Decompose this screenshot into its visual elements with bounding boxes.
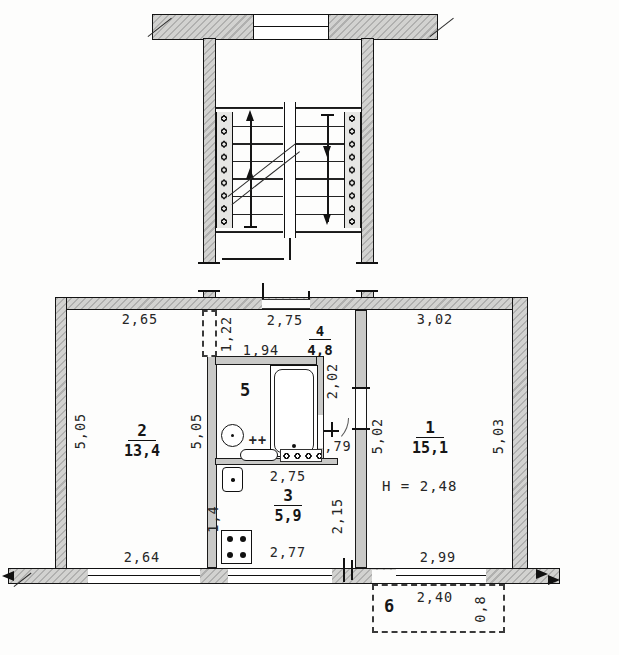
room2-area: 13,4 bbox=[124, 442, 160, 460]
tick bbox=[356, 290, 378, 292]
burner bbox=[227, 552, 233, 558]
balcony-door-opening bbox=[372, 570, 396, 583]
bathtub-drain bbox=[292, 444, 296, 448]
tick bbox=[198, 290, 220, 292]
divider-foot bbox=[289, 238, 291, 260]
tick bbox=[198, 262, 220, 264]
dim-room1-top: 3,02 bbox=[395, 311, 475, 327]
dim-bath-depth: 2,02 bbox=[324, 353, 340, 409]
kitchen-sink-drain bbox=[231, 478, 235, 482]
room5-number: 5 bbox=[240, 380, 250, 400]
stair-arrow-down-line bbox=[327, 114, 329, 222]
radiator-circles bbox=[280, 449, 322, 462]
entrance-door-tick2 bbox=[308, 291, 310, 299]
tick bbox=[356, 262, 378, 264]
arrow-tail-tick bbox=[321, 114, 334, 116]
dim-kitchen-left: 1,4 bbox=[205, 491, 221, 547]
dim-closet: 1,22 bbox=[218, 306, 234, 362]
stair-baluster-left bbox=[216, 112, 233, 228]
tick bbox=[351, 560, 353, 580]
shaft-wall-opening-left bbox=[201, 262, 218, 292]
built-in-closet bbox=[202, 310, 217, 357]
dim-hall-top: 2,75 bbox=[250, 312, 320, 328]
dim-wc-width: ,79 bbox=[318, 438, 358, 454]
burner bbox=[240, 536, 246, 542]
stair-center-divider bbox=[284, 102, 296, 238]
wall-continues-arrow-right bbox=[536, 569, 548, 579]
stair-arrow-up-head bbox=[246, 110, 254, 121]
dim-room2-top: 2,65 bbox=[100, 311, 180, 327]
tick bbox=[343, 558, 345, 582]
tick bbox=[352, 387, 370, 389]
room1-label: 1 15,1 bbox=[390, 418, 470, 457]
apartment-right-wall bbox=[512, 297, 528, 584]
room1-door-opening bbox=[356, 388, 366, 428]
dim-room1-right: 5,03 bbox=[490, 408, 506, 464]
stair-arrow-down-head-mid bbox=[323, 146, 331, 157]
entrance-door-tick bbox=[262, 283, 264, 299]
dim-room2-right: 5,05 bbox=[188, 403, 204, 459]
vent-marks: ++ bbox=[246, 432, 270, 448]
dim-balcony-depth: 0,8 bbox=[472, 581, 488, 637]
tick bbox=[352, 428, 370, 430]
bath-counter bbox=[240, 449, 278, 461]
room3-label: 3 5,9 bbox=[248, 486, 328, 525]
shaft-wall-opening-right bbox=[359, 262, 376, 292]
tick bbox=[331, 422, 333, 437]
dim-room1-left: 5,02 bbox=[369, 408, 385, 464]
stair-shaft-wall-right bbox=[361, 38, 374, 298]
room1-number: 1 bbox=[416, 419, 444, 438]
room2-number: 2 bbox=[128, 422, 156, 441]
burner bbox=[240, 552, 246, 558]
stair-arrow-down-head bbox=[323, 214, 331, 225]
wall-continues-arrow-right2 bbox=[548, 575, 560, 585]
arrow-tail-tick bbox=[244, 226, 257, 228]
washbasin-drain bbox=[231, 434, 234, 437]
dim-bath-width: 1,94 bbox=[226, 342, 296, 358]
dim-kitchen-bottom: 2,77 bbox=[248, 544, 328, 560]
room6-number: 6 bbox=[384, 596, 394, 616]
apartment-left-wall bbox=[55, 297, 67, 584]
dim-kitchen-top: 2,75 bbox=[248, 468, 328, 484]
room2-label: 2 13,4 bbox=[102, 421, 182, 460]
kitchen-window-band bbox=[228, 568, 332, 584]
floor-plan: ++ 2 13,4 1 15,1 H = 2,48 3 5,9 4 4,8 5 … bbox=[0, 0, 619, 655]
room1-area: 15,1 bbox=[412, 439, 448, 457]
wall-continues-arrow-left bbox=[2, 571, 14, 581]
dim-room1-window: 2,99 bbox=[398, 549, 478, 565]
dim-kitchen-right: 2,15 bbox=[329, 488, 345, 544]
dim-room2-left: 5,05 bbox=[72, 403, 88, 459]
room3-area: 5,9 bbox=[274, 507, 301, 525]
dim-balcony-width: 2,40 bbox=[400, 589, 470, 605]
stair-shaft-wall-left bbox=[203, 38, 216, 298]
dim-room2-window: 2,64 bbox=[102, 549, 182, 565]
stair-baluster-right bbox=[344, 112, 361, 228]
burner bbox=[227, 536, 233, 542]
bathtub-inner bbox=[274, 369, 314, 453]
room2-window-band bbox=[88, 568, 200, 584]
room3-number: 3 bbox=[274, 487, 302, 506]
stairwell-window bbox=[253, 14, 329, 40]
landing-edge bbox=[222, 258, 284, 260]
room1-ceiling-height: H = 2,48 bbox=[382, 478, 457, 494]
entrance-door-opening bbox=[262, 299, 310, 309]
